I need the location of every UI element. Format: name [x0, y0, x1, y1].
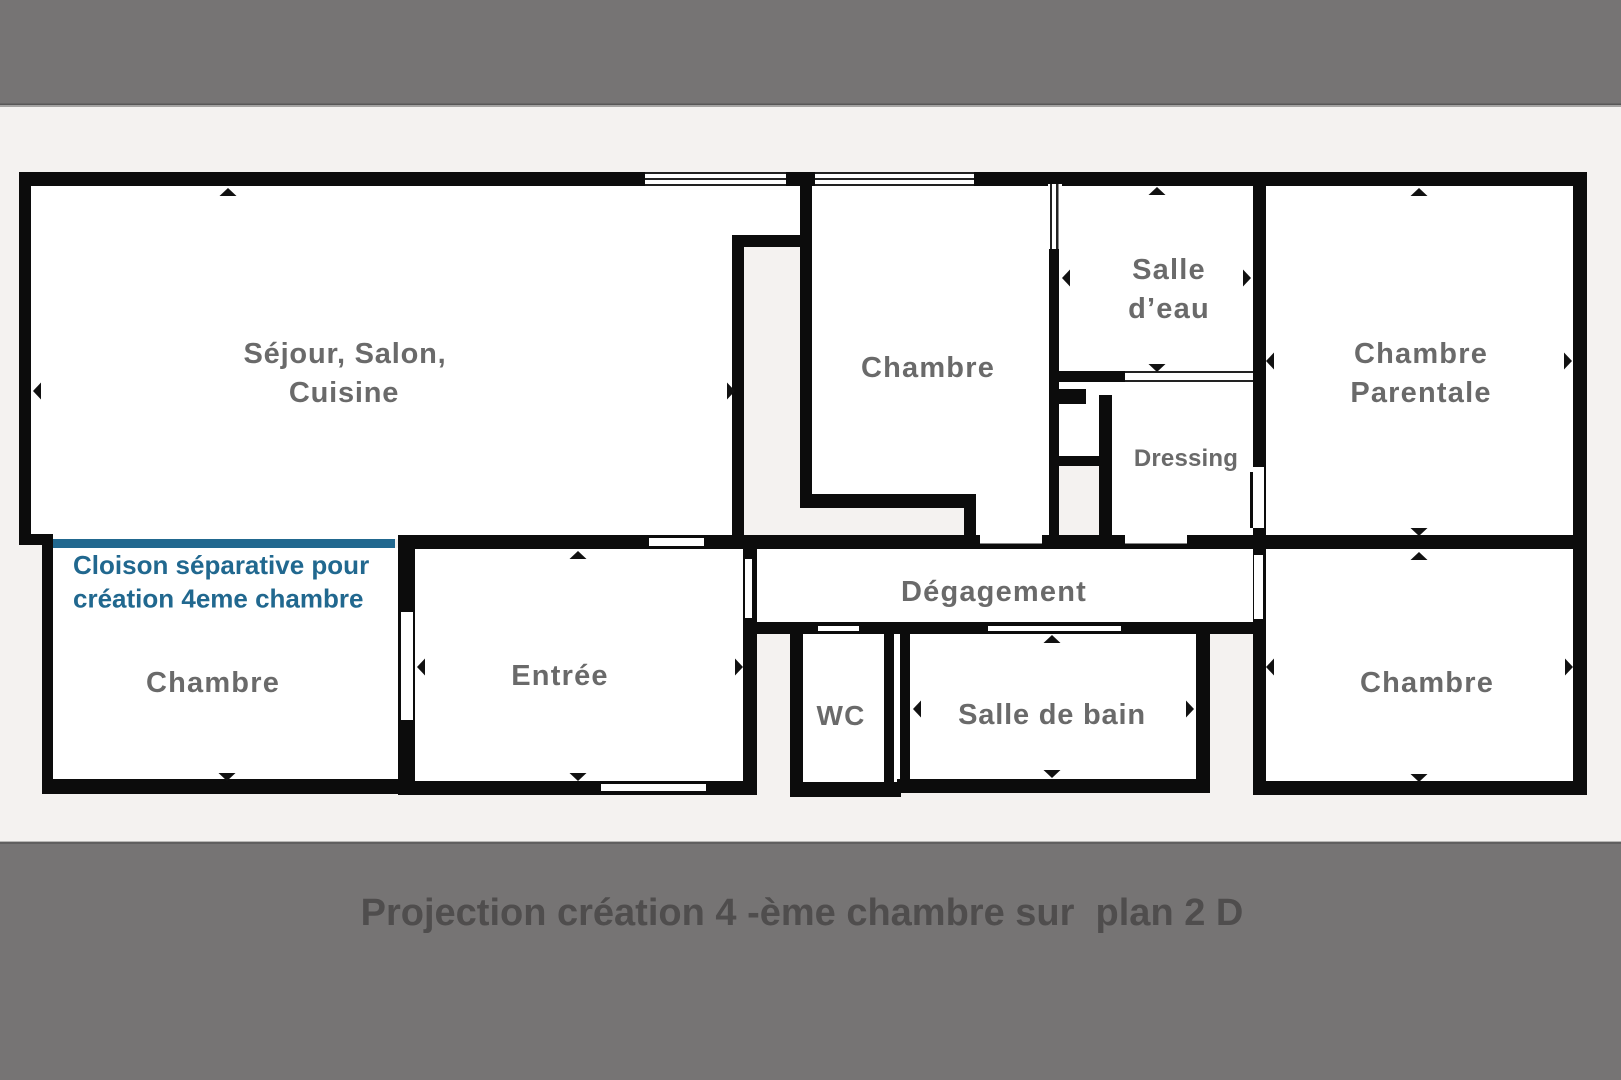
svg-text:Salle de bain: Salle de bain [958, 699, 1146, 731]
svg-text:Chambre: Chambre [146, 667, 280, 699]
svg-text:d’eau: d’eau [1128, 293, 1210, 325]
svg-text:Chambre: Chambre [1354, 338, 1488, 370]
svg-text:Cuisine: Cuisine [289, 377, 399, 409]
svg-text:Salle: Salle [1132, 254, 1206, 286]
svg-text:Dressing: Dressing [1134, 445, 1238, 472]
svg-text:création 4eme chambre: création 4eme chambre [73, 584, 363, 614]
svg-text:WC: WC [816, 700, 865, 731]
svg-text:Chambre: Chambre [1360, 667, 1494, 699]
svg-text:Cloison séparative pour: Cloison séparative pour [73, 550, 369, 580]
svg-text:Séjour, Salon,: Séjour, Salon, [244, 338, 447, 370]
svg-text:Chambre: Chambre [861, 352, 995, 384]
svg-text:Parentale: Parentale [1350, 377, 1491, 409]
svg-text:Dégagement: Dégagement [901, 576, 1087, 608]
svg-text:Projection création 4 -ème cha: Projection création 4 -ème chambre sur p… [361, 892, 1244, 934]
svg-text:Entrée: Entrée [511, 660, 608, 692]
